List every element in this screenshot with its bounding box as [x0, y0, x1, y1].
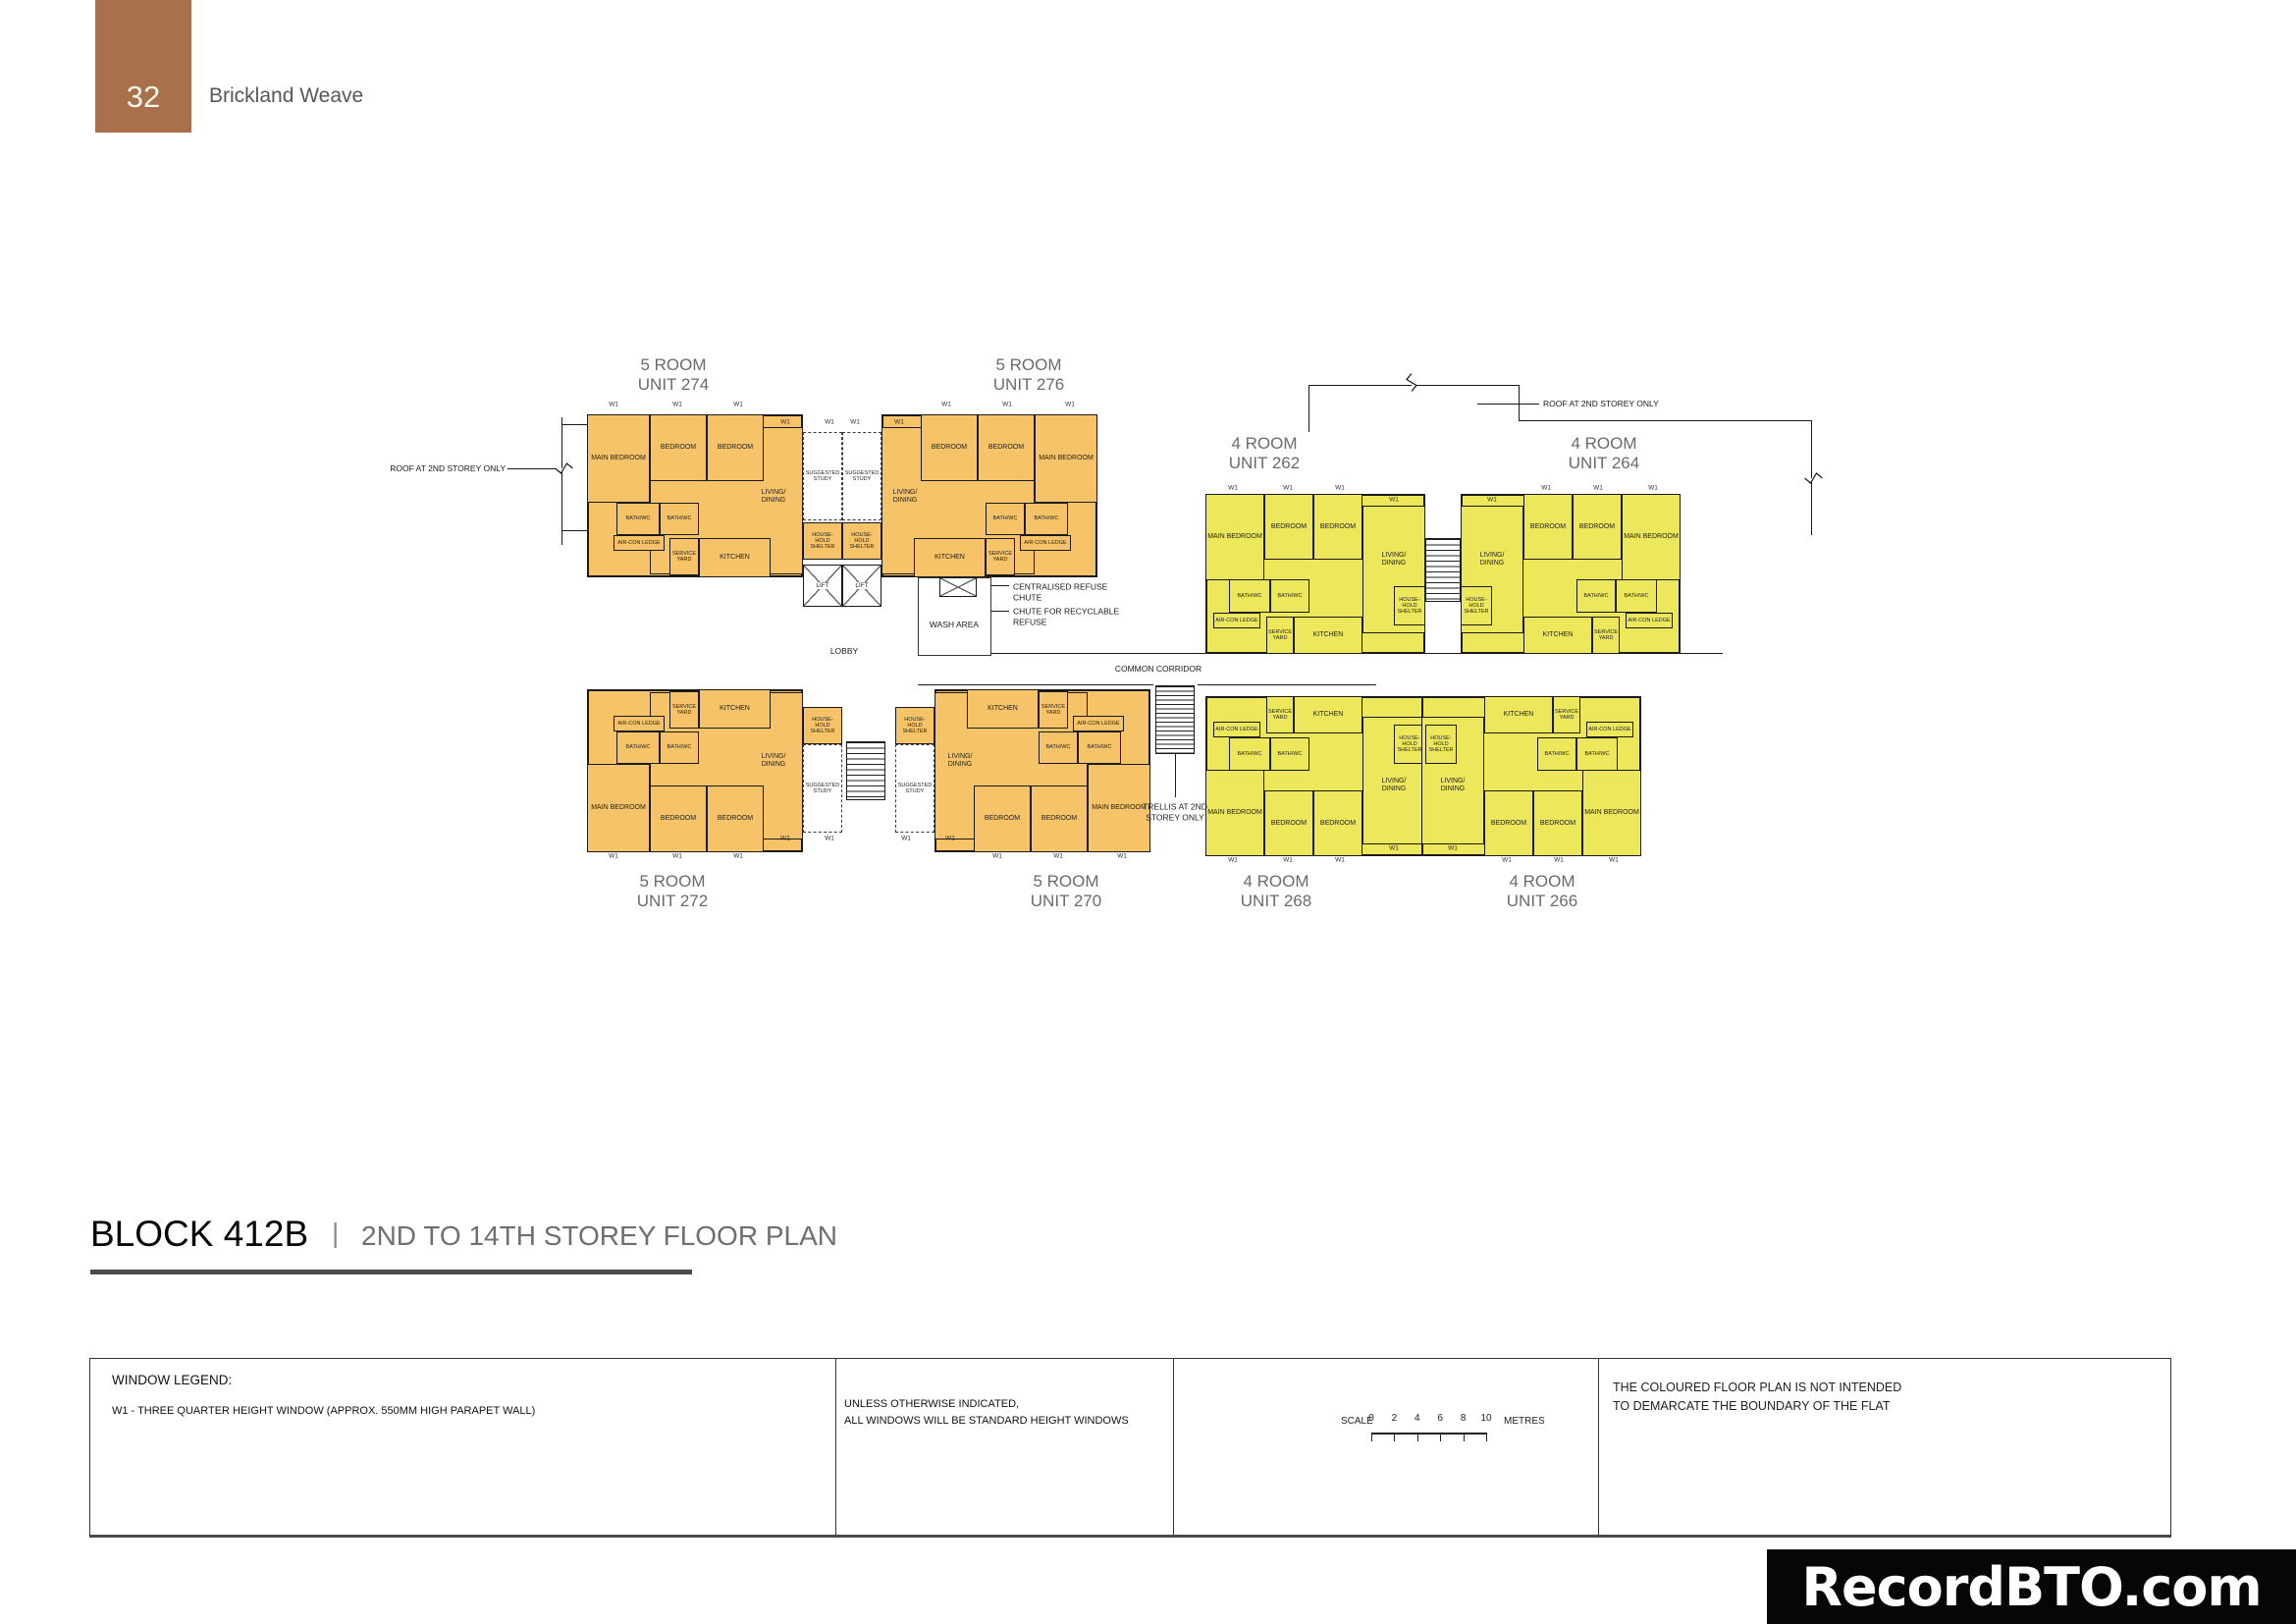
bath-wc-room: BATH/WC	[1078, 731, 1121, 764]
house-hold-shelter-room: HOUSE- HOLD SHELTER	[1461, 586, 1492, 625]
bedroom-room: BEDROOM	[1264, 494, 1313, 560]
house-hold-shelter-room: HOUSE- HOLD SHELTER	[803, 707, 842, 744]
air-con-ledge-room: AIR-CON LEDGE	[1213, 722, 1260, 737]
main-bedroom-room: MAIN BEDROOM	[1582, 770, 1641, 856]
floor-plan-page: 32 Brickland Weave LIVING/ DININGSUGGEST…	[0, 0, 2296, 1624]
roof-note-right: ROOF AT 2ND STOREY ONLY	[1543, 399, 1659, 409]
trellis-note: TRELLIS AT 2ND STOREY ONLY	[1143, 802, 1207, 823]
window-w1-marker: W1	[609, 853, 618, 860]
window-w1-marker: W1	[1554, 857, 1564, 864]
bedroom-room: BEDROOM	[921, 414, 978, 481]
floor-plan-drawing: LIVING/ DININGSUGGESTED STUDYMAIN BEDROO…	[0, 0, 2296, 1227]
watermark-banner: RecordBTO.com	[1767, 1549, 2296, 1624]
scale-tick: 4	[1415, 1413, 1420, 1424]
roof-note-left: ROOF AT 2ND STOREY ONLY	[390, 463, 506, 474]
window-w1-marker: W1	[672, 402, 682, 408]
living-dining-label: LIVING/ DINING	[1441, 778, 1466, 793]
bedroom-room: BEDROOM	[650, 414, 707, 481]
window-w1-marker: W1	[825, 419, 834, 426]
bedroom-room: BEDROOM	[1313, 790, 1362, 856]
window-w1-marker: W1	[1593, 485, 1603, 492]
kitchen-room: KITCHEN	[1523, 617, 1592, 654]
title-separator: |	[332, 1218, 339, 1249]
window-w1-marker: W1	[1228, 485, 1238, 492]
unit-label-262: 4 ROOM UNIT 262	[1229, 434, 1300, 473]
scale-tick: 10	[1480, 1413, 1491, 1424]
air-con-ledge-room: AIR-CON LEDGE	[1586, 722, 1633, 737]
bath-wc-room: BATH/WC	[1576, 579, 1616, 613]
service-yard-room: SERVICE YARD	[669, 691, 699, 729]
kitchen-room: KITCHEN	[699, 689, 771, 729]
kitchen-room: KITCHEN	[914, 538, 986, 577]
bath-wc-room: BATH/WC	[986, 503, 1025, 535]
plan-line	[561, 424, 587, 425]
scale-tick-mark	[1486, 1433, 1487, 1441]
bath-wc-room: BATH/WC	[1616, 579, 1657, 613]
lobby-label: LOBBY	[830, 646, 858, 657]
window-w1-marker: W1	[780, 419, 790, 426]
living-dining-label: LIVING/ DINING	[762, 489, 786, 505]
window-w1-marker: W1	[780, 836, 790, 842]
bedroom-room: BEDROOM	[707, 414, 764, 481]
scale-tick: 0	[1368, 1413, 1374, 1424]
window-w1-marker: W1	[992, 853, 1002, 860]
plan-line	[561, 530, 587, 531]
scale-tick: 6	[1437, 1413, 1443, 1424]
bath-wc-room: BATH/WC	[1039, 731, 1078, 764]
scale-box: SCALE0246810METRES	[1174, 1359, 1599, 1535]
bedroom-room: BEDROOM	[978, 414, 1035, 481]
recyclable-chute-note: CHUTE FOR RECYCLABLE REFUSE	[1013, 607, 1119, 627]
disclaimer-text: THE COLOURED FLOOR PLAN IS NOT INTENDED …	[1613, 1379, 1901, 1416]
scale-tick: 8	[1461, 1413, 1467, 1424]
bath-wc-room: BATH/WC	[1537, 737, 1576, 771]
plan-line	[1198, 684, 1376, 685]
air-con-ledge-room: AIR-CON LEDGE	[1213, 613, 1260, 628]
kitchen-room: KITCHEN	[699, 538, 771, 577]
window-w1-marker: W1	[941, 402, 951, 408]
suggested-study-room: SUGGESTED STUDY	[895, 744, 934, 833]
window-w1-marker: W1	[1389, 845, 1399, 852]
living-dining-label: LIVING/ DINING	[1480, 552, 1505, 568]
plan-line	[1477, 404, 1539, 405]
main-bedroom-room: MAIN BEDROOM	[587, 414, 650, 503]
staircase	[846, 741, 885, 800]
window-w1-marker: W1	[1502, 857, 1512, 864]
window-w1-marker: W1	[1389, 497, 1399, 504]
block-title: BLOCK 412B	[90, 1214, 308, 1255]
window-w1-marker: W1	[1053, 853, 1063, 860]
service-yard-room: SERVICE YARD	[986, 538, 1015, 575]
window-w1-marker: W1	[1283, 485, 1293, 492]
air-con-ledge-room: AIR-CON LEDGE	[1073, 716, 1124, 731]
disclaimer-box: THE COLOURED FLOOR PLAN IS NOT INTENDED …	[1599, 1359, 2170, 1535]
scale-bar-line	[1371, 1433, 1486, 1435]
window-w1-marker: W1	[1448, 845, 1458, 852]
watermark-text: RecordBTO.com	[1801, 1556, 2261, 1618]
service-yard-room: SERVICE YARD	[1266, 696, 1294, 733]
bedroom-room: BEDROOM	[1523, 494, 1573, 560]
window-w1-marker: W1	[1541, 485, 1551, 492]
house-hold-shelter-room: HOUSE- HOLD SHELTER	[895, 707, 934, 744]
kitchen-room: KITCHEN	[1484, 696, 1553, 733]
bath-wc-room: BATH/WC	[660, 503, 699, 535]
living-dining-label: LIVING/ DINING	[1382, 552, 1407, 568]
break-symbol	[551, 462, 573, 474]
bedroom-room: BEDROOM	[1573, 494, 1622, 560]
window-w1-marker: W1	[901, 836, 911, 842]
staircase	[1425, 538, 1461, 602]
living-dining-label: LIVING/ DINING	[948, 753, 973, 769]
bath-wc-room: BATH/WC	[1270, 579, 1309, 613]
storey-subtitle: 2ND TO 14TH STOREY FLOOR PLAN	[361, 1220, 837, 1252]
break-symbol	[1800, 472, 1823, 484]
window-w1-marker: W1	[825, 836, 834, 842]
main-bedroom-room: MAIN BEDROOM	[1205, 494, 1264, 580]
unit-label-272: 5 ROOM UNIT 272	[637, 872, 708, 911]
plan-line	[1175, 754, 1176, 797]
window-w1-marker: W1	[1228, 857, 1238, 864]
lift-shaft: LIFT	[803, 565, 842, 607]
main-bedroom-room: MAIN BEDROOM	[587, 764, 650, 852]
common-corridor-label: COMMON CORRIDOR	[1115, 664, 1201, 675]
bath-wc-room: BATH/WC	[660, 731, 699, 764]
plan-line	[1519, 420, 1811, 421]
plan-line	[1308, 385, 1309, 432]
living-dining-label: LIVING/ DINING	[893, 489, 918, 505]
suggested-study-room: SUGGESTED STUDY	[803, 744, 842, 833]
plan-line	[918, 684, 1153, 685]
bath-wc-room: BATH/WC	[1270, 737, 1309, 771]
bath-wc-room: BATH/WC	[616, 731, 660, 764]
house-hold-shelter-room: HOUSE- HOLD SHELTER	[1394, 586, 1425, 625]
lift-shaft: LIFT	[842, 565, 881, 607]
air-con-ledge-room: AIR-CON LEDGE	[1626, 613, 1673, 628]
window-w1-marker: W1	[1487, 497, 1497, 504]
living-dining-label: LIVING/ DINING	[762, 753, 786, 769]
kitchen-room: KITCHEN	[967, 689, 1039, 729]
window-note-box: UNLESS OTHERWISE INDICATED, ALL WINDOWS …	[836, 1359, 1174, 1535]
unit-label-276: 5 ROOM UNIT 276	[993, 355, 1064, 395]
window-legend-item: W1 - THREE QUARTER HEIGHT WINDOW (APPROX…	[112, 1405, 535, 1417]
service-yard-room: SERVICE YARD	[669, 538, 699, 575]
main-bedroom-room: MAIN BEDROOM	[1035, 414, 1097, 503]
kitchen-room: KITCHEN	[1294, 696, 1362, 733]
bedroom-room: BEDROOM	[1484, 790, 1533, 856]
wash-area-label: WASH AREA	[930, 620, 979, 630]
house-hold-shelter-room: HOUSE- HOLD SHELTER	[1425, 725, 1457, 764]
house-hold-shelter-room: HOUSE- HOLD SHELTER	[803, 522, 842, 560]
bath-wc-room: BATH/WC	[1229, 737, 1270, 771]
window-w1-marker: W1	[1117, 853, 1127, 860]
main-bedroom-room: MAIN BEDROOM	[1622, 494, 1681, 580]
break-symbol	[1406, 374, 1417, 397]
bath-wc-room: BATH/WC	[616, 503, 660, 535]
unit-label-274: 5 ROOM UNIT 274	[638, 355, 709, 395]
unit-label-264: 4 ROOM UNIT 264	[1569, 434, 1639, 473]
scale-tick: 2	[1392, 1413, 1398, 1424]
kitchen-room: KITCHEN	[1294, 617, 1362, 654]
bedroom-room: BEDROOM	[707, 785, 764, 852]
trellis-hatch	[1155, 685, 1195, 754]
suggested-study-room: SUGGESTED STUDY	[842, 432, 881, 520]
air-con-ledge-room: AIR-CON LEDGE	[614, 716, 665, 731]
bedroom-room: BEDROOM	[974, 785, 1031, 852]
window-w1-marker: W1	[1335, 485, 1345, 492]
window-w1-marker: W1	[733, 853, 743, 860]
legend-row: WINDOW LEGEND: W1 - THREE QUARTER HEIGHT…	[89, 1358, 2171, 1538]
plan-line	[561, 417, 562, 545]
unit-label-268: 4 ROOM UNIT 268	[1241, 872, 1311, 911]
window-w1-marker: W1	[733, 402, 743, 408]
main-bedroom-room: MAIN BEDROOM	[1088, 764, 1150, 852]
unit-label-270: 5 ROOM UNIT 270	[1031, 872, 1101, 911]
refuse-chute-note: CENTRALISED REFUSE CHUTE	[1013, 582, 1107, 603]
window-w1-marker: W1	[1065, 402, 1075, 408]
air-con-ledge-room: AIR-CON LEDGE	[614, 535, 665, 551]
window-w1-marker: W1	[609, 402, 618, 408]
scale-unit: METRES	[1504, 1416, 1545, 1427]
window-w1-marker: W1	[1648, 485, 1658, 492]
refuse-chute	[939, 577, 977, 597]
plan-line	[1519, 385, 1520, 420]
main-bedroom-room: MAIN BEDROOM	[1205, 770, 1264, 856]
window-legend-title: WINDOW LEGEND:	[112, 1373, 232, 1387]
service-yard-room: SERVICE YARD	[1553, 696, 1580, 733]
bedroom-room: BEDROOM	[650, 785, 707, 852]
bath-wc-room: BATH/WC	[1229, 579, 1270, 613]
living-dining-label: LIVING/ DINING	[1382, 778, 1407, 793]
suggested-study-room: SUGGESTED STUDY	[803, 432, 842, 520]
bedroom-room: BEDROOM	[1031, 785, 1088, 852]
title-underline	[90, 1270, 692, 1274]
bath-wc-room: BATH/WC	[1576, 737, 1618, 771]
service-yard-room: SERVICE YARD	[1592, 617, 1620, 654]
window-w1-marker: W1	[1335, 857, 1345, 864]
unit-label-266: 4 ROOM UNIT 266	[1507, 872, 1577, 911]
window-w1-marker: W1	[850, 419, 860, 426]
window-w1-marker: W1	[672, 853, 682, 860]
bedroom-room: BEDROOM	[1533, 790, 1582, 856]
window-w1-marker: W1	[1002, 402, 1012, 408]
window-legend-box: WINDOW LEGEND: W1 - THREE QUARTER HEIGHT…	[90, 1359, 836, 1535]
window-note: UNLESS OTHERWISE INDICATED, ALL WINDOWS …	[844, 1396, 1129, 1430]
window-w1-marker: W1	[894, 419, 904, 426]
bedroom-room: BEDROOM	[1313, 494, 1362, 560]
bedroom-room: BEDROOM	[1264, 790, 1313, 856]
service-yard-room: SERVICE YARD	[1039, 691, 1068, 729]
house-hold-shelter-room: HOUSE- HOLD SHELTER	[842, 522, 881, 560]
service-yard-room: SERVICE YARD	[1266, 617, 1294, 654]
window-w1-marker: W1	[1609, 857, 1619, 864]
window-w1-marker: W1	[1283, 857, 1293, 864]
bath-wc-room: BATH/WC	[1025, 503, 1068, 535]
air-con-ledge-room: AIR-CON LEDGE	[1020, 535, 1071, 551]
window-w1-marker: W1	[945, 836, 955, 842]
